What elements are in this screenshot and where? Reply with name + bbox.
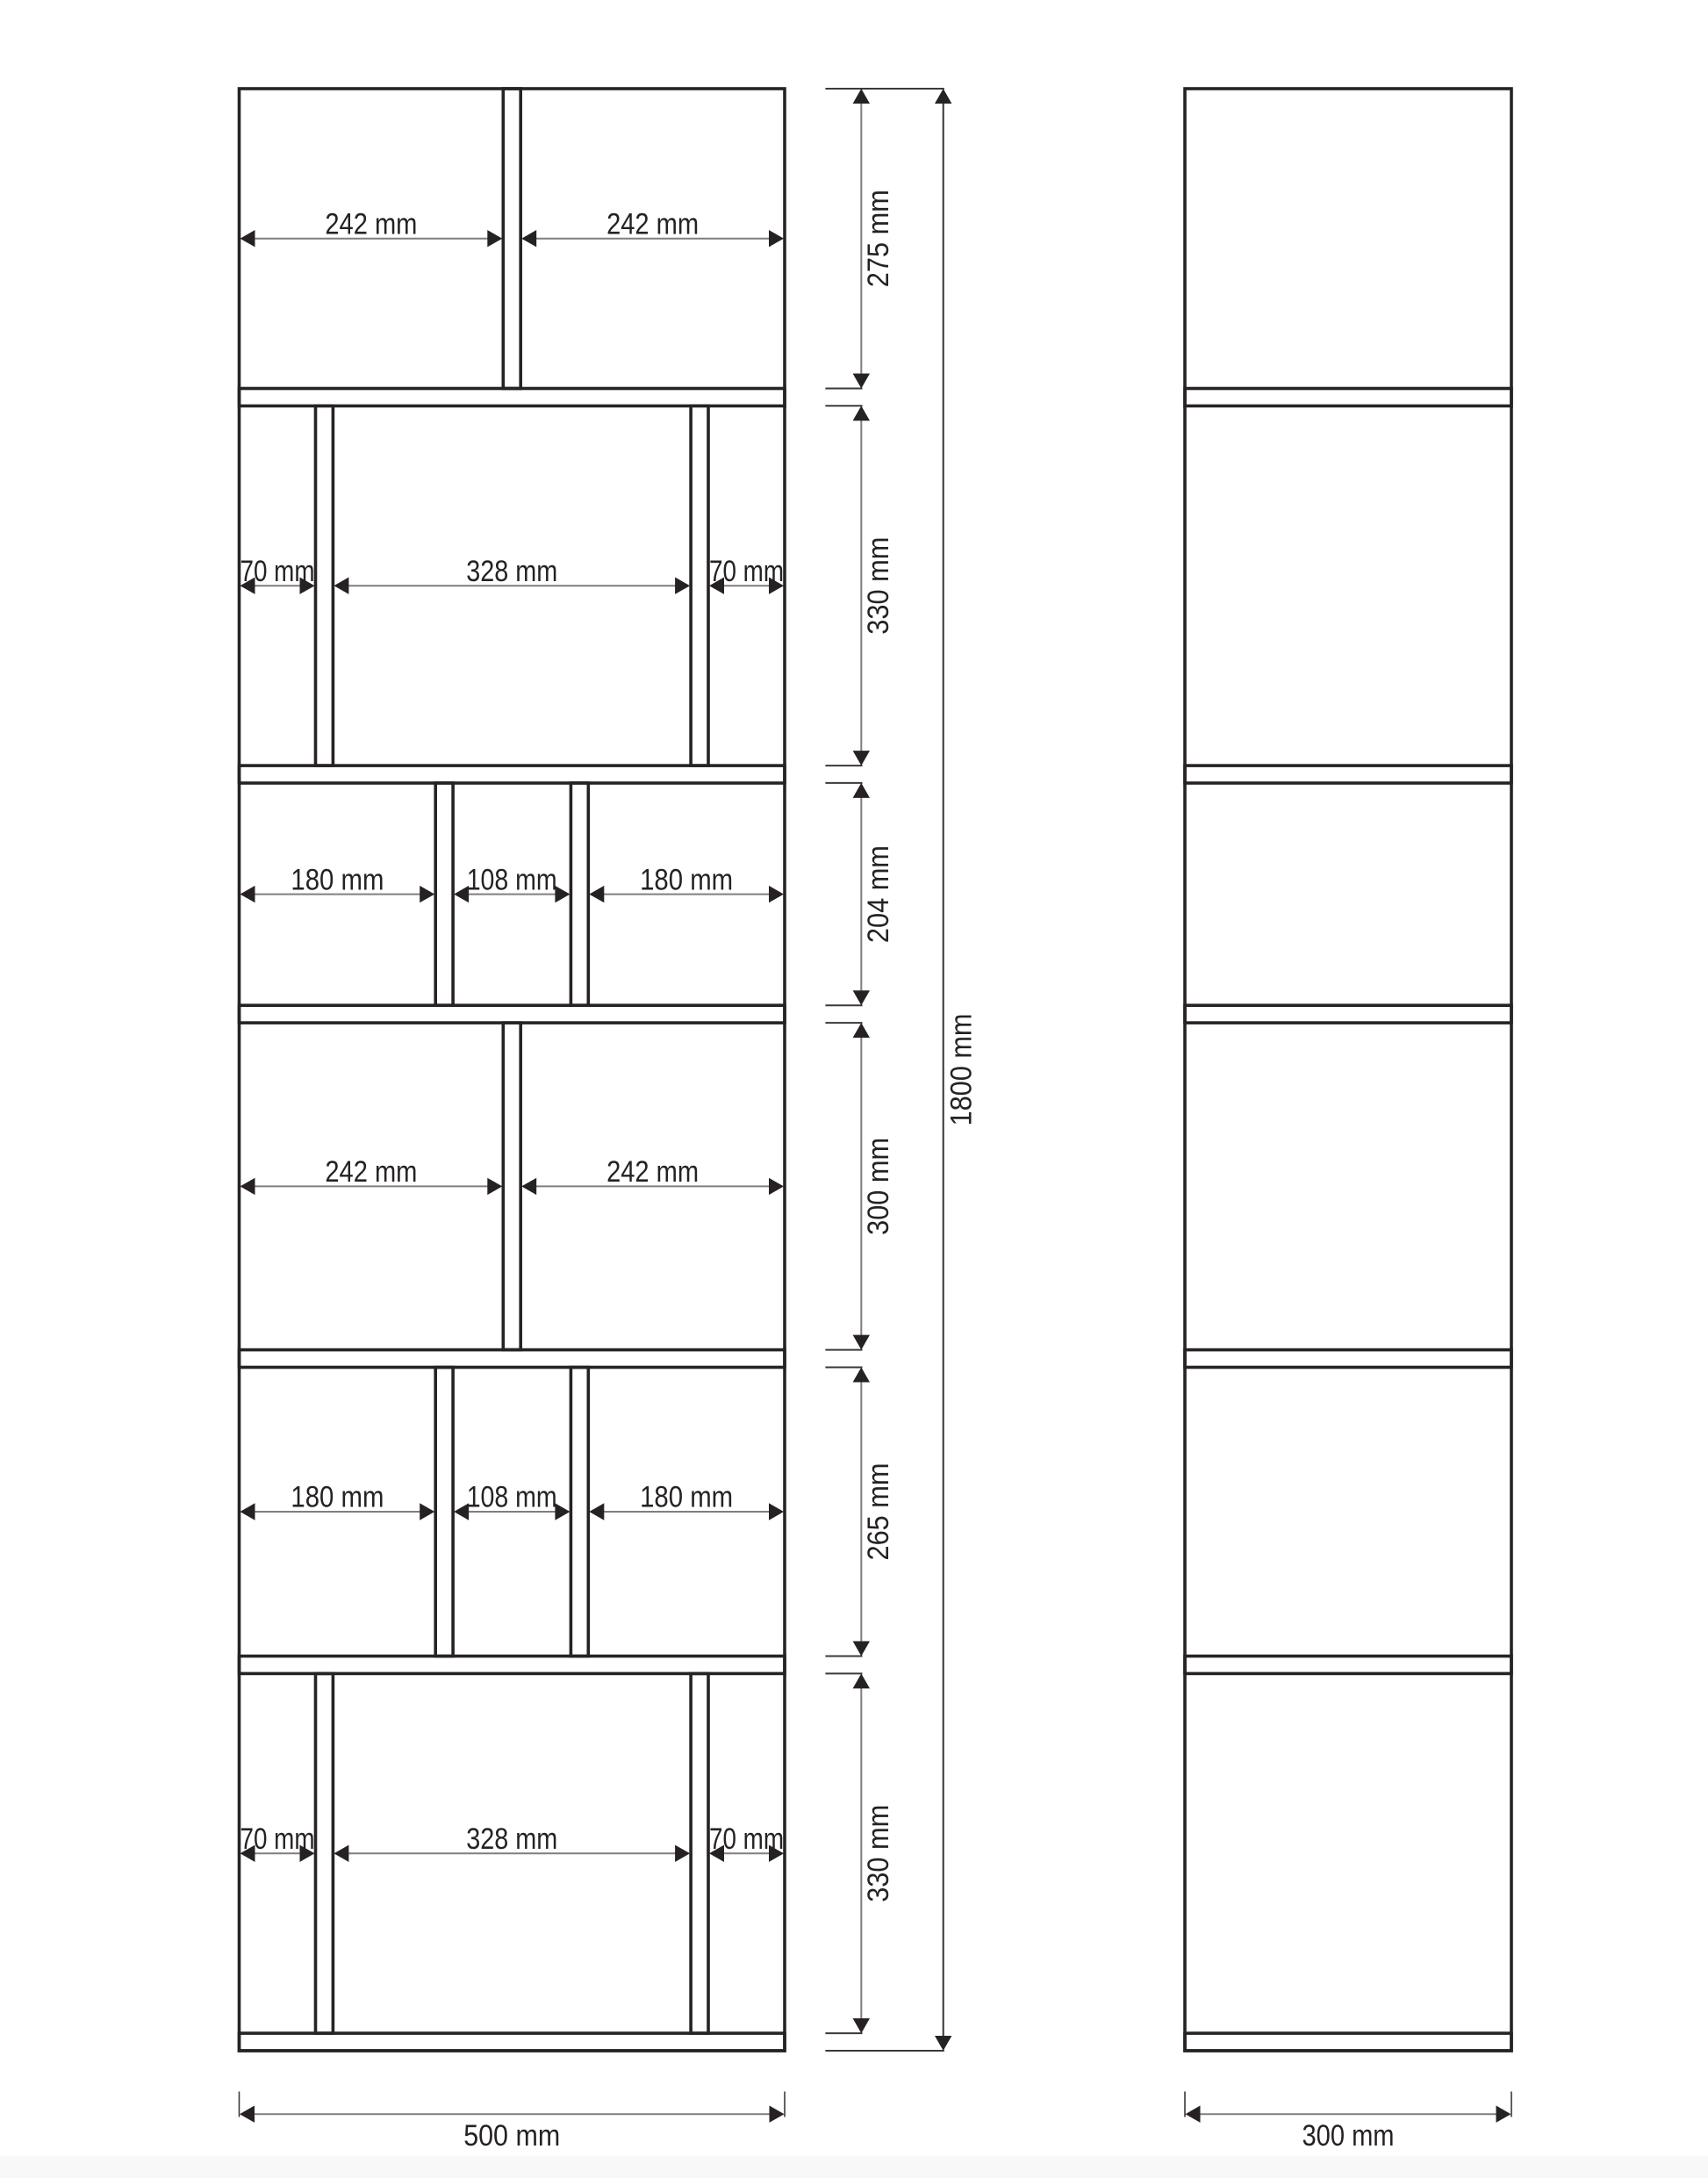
svg-text:108 mm: 108 mm xyxy=(467,1481,557,1514)
svg-text:70 mm: 70 mm xyxy=(709,1822,784,1856)
svg-text:242 mm: 242 mm xyxy=(325,207,417,241)
svg-text:180 mm: 180 mm xyxy=(291,1481,384,1514)
svg-text:330 mm: 330 mm xyxy=(862,1805,895,1902)
svg-text:300 mm: 300 mm xyxy=(862,1138,895,1235)
svg-text:500 mm: 500 mm xyxy=(463,2119,560,2153)
svg-text:204 mm: 204 mm xyxy=(862,845,895,943)
svg-text:242 mm: 242 mm xyxy=(606,207,699,241)
svg-text:70 mm: 70 mm xyxy=(240,1822,315,1856)
svg-text:328 mm: 328 mm xyxy=(466,1822,557,1856)
svg-text:300 mm: 300 mm xyxy=(1303,2119,1395,2153)
svg-text:265 mm: 265 mm xyxy=(862,1463,895,1561)
svg-text:242 mm: 242 mm xyxy=(325,1155,417,1189)
svg-text:180 mm: 180 mm xyxy=(640,863,733,896)
svg-text:70 mm: 70 mm xyxy=(240,555,315,588)
svg-text:180 mm: 180 mm xyxy=(291,863,384,896)
svg-text:1800 mm: 1800 mm xyxy=(945,1014,979,1126)
svg-text:70 mm: 70 mm xyxy=(709,555,784,588)
svg-text:330 mm: 330 mm xyxy=(862,537,895,635)
svg-text:242 mm: 242 mm xyxy=(606,1155,699,1189)
svg-text:108 mm: 108 mm xyxy=(467,863,557,896)
svg-text:328 mm: 328 mm xyxy=(466,555,557,588)
svg-text:180 mm: 180 mm xyxy=(640,1481,733,1514)
svg-text:275 mm: 275 mm xyxy=(862,190,895,287)
